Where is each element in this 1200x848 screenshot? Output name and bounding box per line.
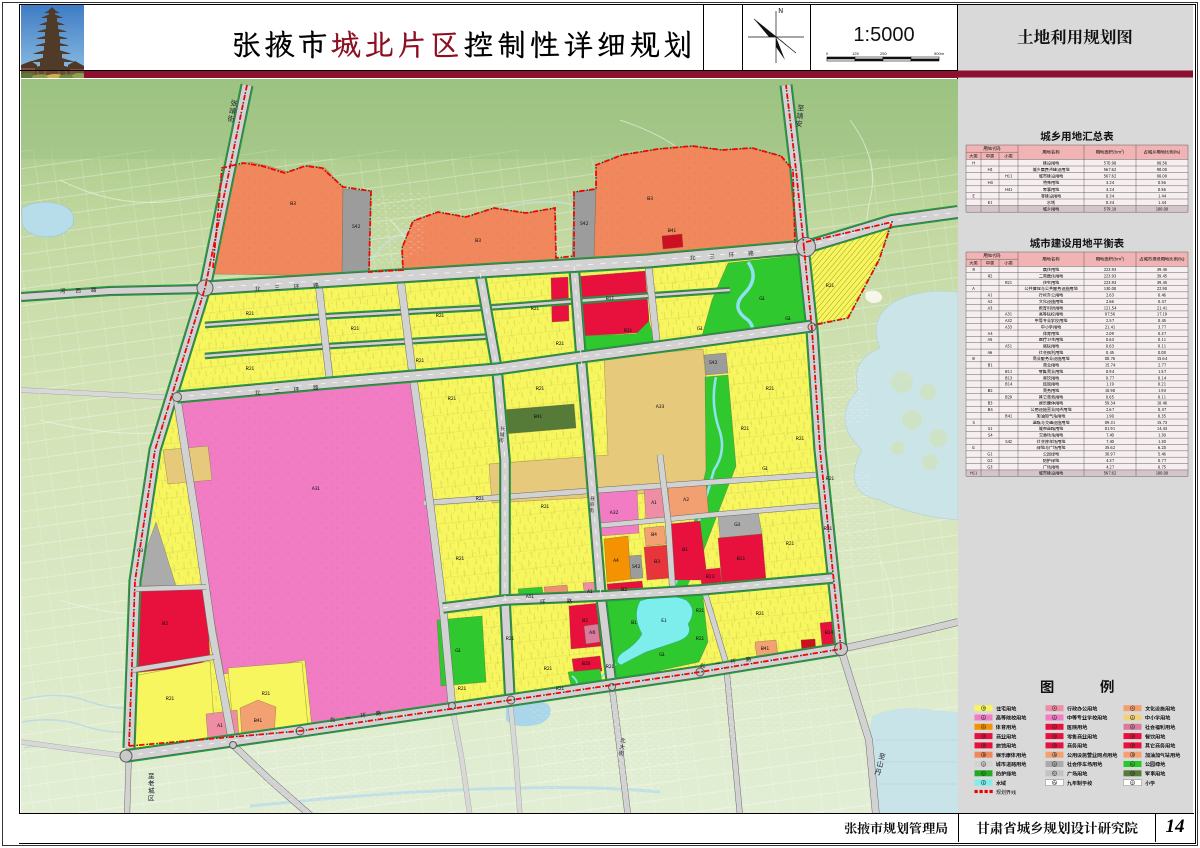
svg-text:15.64: 15.64 bbox=[1157, 356, 1168, 362]
svg-text:R21: R21 bbox=[544, 665, 553, 672]
svg-text:R21: R21 bbox=[536, 385, 545, 392]
svg-text:小学: 小学 bbox=[1145, 780, 1155, 787]
svg-text:G1: G1 bbox=[659, 651, 665, 658]
svg-text:1.44: 1.44 bbox=[1158, 200, 1167, 206]
svg-text:8.94: 8.94 bbox=[1106, 369, 1115, 375]
svg-text:河西路: 河西路 bbox=[60, 285, 107, 295]
svg-text:21.41: 21.41 bbox=[1105, 324, 1116, 330]
svg-text:社会停车场用地: 社会停车场用地 bbox=[1037, 439, 1066, 445]
svg-text:九: 九 bbox=[1052, 780, 1057, 785]
svg-text:医疗卫生用地: 医疗卫生用地 bbox=[1039, 337, 1064, 343]
svg-text:B3: B3 bbox=[654, 558, 660, 565]
svg-text:2.67: 2.67 bbox=[1106, 407, 1115, 413]
svg-text:广场用地: 广场用地 bbox=[1042, 464, 1059, 470]
svg-text:公用设施营业网点用地: 公用设施营业网点用地 bbox=[1031, 406, 1072, 413]
svg-text:A1: A1 bbox=[988, 293, 993, 299]
svg-text:B41: B41 bbox=[534, 413, 543, 420]
svg-text:R21: R21 bbox=[826, 475, 835, 482]
svg-text:B13: B13 bbox=[706, 573, 715, 580]
svg-text:高等院校用地: 高等院校用地 bbox=[1039, 312, 1064, 318]
svg-text:B14: B14 bbox=[1005, 382, 1013, 388]
svg-text:公园绿地: 公园绿地 bbox=[1145, 761, 1166, 768]
svg-text:5.46: 5.46 bbox=[1158, 452, 1167, 458]
svg-text:零售商业用地: 零售商业用地 bbox=[1067, 733, 1098, 740]
svg-text:图: 图 bbox=[1040, 676, 1055, 697]
svg-text:100.00: 100.00 bbox=[1156, 471, 1169, 477]
svg-text:R21: R21 bbox=[262, 690, 271, 697]
svg-text:R21: R21 bbox=[756, 610, 765, 617]
svg-text:教育科研用地: 教育科研用地 bbox=[1039, 305, 1064, 311]
svg-text:0.75: 0.75 bbox=[1158, 464, 1167, 470]
svg-text:R21: R21 bbox=[786, 540, 795, 547]
svg-text:R21: R21 bbox=[796, 435, 805, 442]
svg-text:R21: R21 bbox=[458, 685, 467, 692]
svg-text:社会停车场用地: 社会停车场用地 bbox=[1067, 761, 1103, 768]
svg-text:G3: G3 bbox=[734, 521, 740, 528]
svg-text:占城市建设用地比例(%): 占城市建设用地比例(%) bbox=[1139, 257, 1185, 263]
svg-text:223.93: 223.93 bbox=[1104, 267, 1117, 273]
svg-text:小类: 小类 bbox=[1004, 153, 1013, 159]
svg-text:B41: B41 bbox=[668, 227, 677, 234]
svg-text:B3: B3 bbox=[475, 237, 481, 244]
svg-text:1.44: 1.44 bbox=[1158, 193, 1167, 199]
svg-text:2.63: 2.63 bbox=[1106, 293, 1115, 299]
svg-text:广场用地: 广场用地 bbox=[1067, 771, 1088, 778]
svg-text:B41: B41 bbox=[761, 645, 770, 652]
svg-text:G: G bbox=[972, 445, 975, 451]
svg-text:2.57: 2.57 bbox=[1106, 318, 1115, 324]
svg-text:A33: A33 bbox=[1005, 324, 1013, 330]
svg-text:6.28: 6.28 bbox=[1158, 445, 1167, 451]
svg-text:0.65: 0.65 bbox=[1106, 394, 1115, 400]
svg-text:1.98: 1.98 bbox=[1106, 413, 1115, 419]
svg-text:G1: G1 bbox=[762, 465, 768, 472]
svg-text:0.47: 0.47 bbox=[1158, 299, 1167, 305]
svg-text:G1: G1 bbox=[759, 295, 765, 302]
svg-text:S42: S42 bbox=[580, 220, 589, 227]
svg-text:中等专业学校用地: 中等专业学校用地 bbox=[1067, 715, 1108, 722]
svg-text:G1: G1 bbox=[987, 452, 993, 458]
svg-text:A1: A1 bbox=[217, 722, 223, 729]
svg-text:其它商务用地: 其它商务用地 bbox=[1039, 394, 1064, 400]
svg-text:7.40: 7.40 bbox=[1106, 439, 1115, 445]
svg-text:S42: S42 bbox=[352, 223, 361, 230]
svg-text:A32: A32 bbox=[610, 509, 619, 516]
svg-text:R21: R21 bbox=[696, 607, 705, 614]
svg-text:B: B bbox=[982, 752, 984, 757]
svg-text:A31: A31 bbox=[312, 485, 321, 492]
svg-text:餐饮用地: 餐饮用地 bbox=[1145, 733, 1166, 740]
svg-text:特殊用地: 特殊用地 bbox=[1043, 180, 1059, 186]
svg-text:占城乡用地比例(%): 占城乡用地比例(%) bbox=[1144, 150, 1181, 156]
svg-text:非建设用地: 非建设用地 bbox=[1041, 193, 1061, 199]
svg-text:B: B bbox=[1131, 743, 1133, 748]
svg-text:至老城区: 至老城区 bbox=[148, 770, 155, 803]
svg-text:81.91: 81.91 bbox=[1105, 426, 1116, 432]
svg-text:A2: A2 bbox=[988, 299, 993, 305]
svg-text:H: H bbox=[972, 160, 975, 166]
svg-text:其它商务用地: 其它商务用地 bbox=[1145, 743, 1176, 750]
svg-text:2.66: 2.66 bbox=[1106, 299, 1115, 305]
svg-text:住宅用地: 住宅用地 bbox=[1042, 280, 1059, 286]
svg-text:R21: R21 bbox=[351, 325, 360, 332]
svg-text:商业服务业设施用地: 商业服务业设施用地 bbox=[1033, 356, 1070, 362]
svg-text:17.19: 17.19 bbox=[1157, 312, 1168, 318]
svg-text:零售商业用地: 零售商业用地 bbox=[1039, 369, 1064, 375]
svg-text:A4: A4 bbox=[988, 331, 993, 337]
svg-text:社会福利用地: 社会福利用地 bbox=[1039, 350, 1064, 356]
svg-text:B29: B29 bbox=[1005, 394, 1013, 400]
svg-text:H41: H41 bbox=[1005, 187, 1013, 193]
svg-text:0.45: 0.45 bbox=[1106, 350, 1115, 356]
svg-text:行政办公用地: 行政办公用地 bbox=[1067, 705, 1098, 712]
svg-text:B: B bbox=[1131, 752, 1133, 757]
svg-text:中等专业学校用地: 中等专业学校用地 bbox=[1035, 318, 1068, 324]
svg-text:R21: R21 bbox=[826, 282, 835, 289]
svg-text:R21: R21 bbox=[1005, 280, 1013, 286]
svg-text:R21: R21 bbox=[606, 663, 615, 670]
svg-text:B4: B4 bbox=[651, 531, 657, 538]
svg-text:S: S bbox=[982, 761, 984, 766]
svg-text:用地名称: 用地名称 bbox=[1041, 256, 1060, 263]
svg-text:39.45: 39.45 bbox=[1157, 274, 1168, 280]
svg-text:大类: 大类 bbox=[969, 260, 978, 266]
svg-text:公用设施营业网点用地: 公用设施营业网点用地 bbox=[1067, 752, 1118, 759]
svg-text:R21: R21 bbox=[824, 525, 833, 532]
svg-text:军事用地: 军事用地 bbox=[1043, 187, 1059, 193]
svg-text:防护绿地: 防护绿地 bbox=[996, 771, 1017, 778]
svg-text:H: H bbox=[1131, 771, 1133, 776]
svg-text:0.63: 0.63 bbox=[1106, 343, 1115, 349]
svg-text:A5: A5 bbox=[988, 337, 993, 343]
svg-text:B3: B3 bbox=[290, 200, 296, 207]
svg-text:R21: R21 bbox=[541, 503, 550, 510]
svg-text:交通场站用地: 交通场站用地 bbox=[1039, 433, 1064, 439]
svg-text:中小学用地: 中小学用地 bbox=[1145, 715, 1171, 722]
svg-text:G3: G3 bbox=[137, 547, 143, 554]
svg-text:H11: H11 bbox=[1005, 174, 1013, 180]
svg-text:0.63: 0.63 bbox=[1106, 337, 1115, 343]
svg-text:城乡用地: 城乡用地 bbox=[1042, 207, 1059, 213]
svg-text:行政办公用地: 行政办公用地 bbox=[1038, 293, 1064, 299]
svg-text:餐饮用地: 餐饮用地 bbox=[1043, 375, 1059, 381]
svg-text:0.45: 0.45 bbox=[1158, 318, 1167, 324]
svg-text:R21: R21 bbox=[166, 695, 175, 702]
svg-text:0.14: 0.14 bbox=[1158, 375, 1167, 381]
svg-text:R21: R21 bbox=[624, 327, 633, 334]
svg-text:A51: A51 bbox=[526, 593, 535, 600]
svg-text:城市建设用地平衡表: 城市建设用地平衡表 bbox=[1029, 236, 1125, 251]
svg-text:3.24: 3.24 bbox=[1106, 187, 1115, 193]
svg-text:R21: R21 bbox=[476, 495, 485, 502]
svg-text:R21: R21 bbox=[556, 340, 565, 347]
svg-text:125: 125 bbox=[852, 51, 859, 56]
svg-text:R21: R21 bbox=[448, 395, 457, 402]
svg-text:H4: H4 bbox=[987, 180, 993, 186]
svg-text:R21: R21 bbox=[556, 685, 565, 692]
svg-text:加油加气站用地: 加油加气站用地 bbox=[1036, 413, 1066, 419]
svg-text:0.46: 0.46 bbox=[1158, 293, 1167, 299]
svg-text:B29: B29 bbox=[582, 660, 591, 667]
svg-text:土地利用规划图: 土地利用规划图 bbox=[1017, 24, 1133, 48]
svg-text:B: B bbox=[982, 733, 984, 738]
svg-text:B1: B1 bbox=[682, 546, 688, 553]
svg-text:A6: A6 bbox=[988, 350, 993, 356]
svg-text:B: B bbox=[1131, 733, 1133, 738]
svg-text:规划界线: 规划界线 bbox=[996, 789, 1016, 796]
svg-text:B: B bbox=[1053, 752, 1055, 757]
svg-text:体育用地: 体育用地 bbox=[995, 724, 1017, 731]
svg-text:绿地与广场用地: 绿地与广场用地 bbox=[1037, 445, 1066, 451]
svg-text:500m: 500m bbox=[934, 51, 945, 56]
svg-text:A51: A51 bbox=[1005, 343, 1013, 349]
svg-text:道路与交通设施用地: 道路与交通设施用地 bbox=[1032, 420, 1070, 426]
svg-text:用地代码: 用地代码 bbox=[982, 252, 1001, 259]
svg-text:旅馆用地: 旅馆用地 bbox=[1042, 382, 1059, 388]
svg-text:城市道路用地: 城市道路用地 bbox=[1038, 426, 1064, 432]
svg-text:0.56: 0.56 bbox=[1158, 187, 1167, 193]
svg-text:B: B bbox=[972, 356, 975, 362]
svg-text:N: N bbox=[778, 6, 783, 16]
svg-text:水域: 水域 bbox=[1046, 200, 1055, 206]
svg-text:B: B bbox=[1053, 743, 1055, 748]
svg-text:商业用地: 商业用地 bbox=[1043, 363, 1059, 369]
svg-text:小类: 小类 bbox=[1004, 260, 1013, 266]
svg-text:B: B bbox=[982, 743, 984, 748]
svg-text:0.11: 0.11 bbox=[1158, 394, 1167, 400]
svg-text:3.24: 3.24 bbox=[1106, 180, 1115, 186]
svg-text:中类: 中类 bbox=[986, 260, 995, 266]
svg-text:防护绿地: 防护绿地 bbox=[1043, 458, 1059, 464]
svg-text:E: E bbox=[983, 780, 985, 785]
svg-text:用地面积(hm²): 用地面积(hm²) bbox=[1095, 257, 1124, 263]
svg-text:社会福利用地: 社会福利用地 bbox=[1145, 724, 1176, 731]
svg-text:0: 0 bbox=[826, 51, 829, 56]
svg-text:加油加气站用地: 加油加气站用地 bbox=[1145, 752, 1181, 759]
svg-text:567.62: 567.62 bbox=[1104, 167, 1117, 173]
svg-text:121.54: 121.54 bbox=[1104, 305, 1117, 311]
svg-text:100.00: 100.00 bbox=[1156, 207, 1169, 213]
svg-text:250: 250 bbox=[880, 51, 887, 56]
svg-text:0.56: 0.56 bbox=[1158, 180, 1167, 186]
svg-text:567.62: 567.62 bbox=[1104, 174, 1117, 180]
svg-text:S4: S4 bbox=[988, 433, 993, 439]
svg-text:10.46: 10.46 bbox=[1157, 401, 1168, 407]
svg-text:G1: G1 bbox=[455, 647, 461, 654]
svg-text:体育用地: 体育用地 bbox=[1042, 331, 1059, 337]
svg-text:30.97: 30.97 bbox=[1105, 452, 1116, 458]
svg-text:2.77: 2.77 bbox=[1158, 363, 1167, 369]
svg-text:G1: G1 bbox=[785, 315, 791, 322]
svg-text:城乡用地汇总表: 城乡用地汇总表 bbox=[1039, 129, 1114, 144]
svg-text:2.09: 2.09 bbox=[1106, 331, 1115, 337]
svg-text:旅馆用地: 旅馆用地 bbox=[996, 743, 1017, 750]
svg-text:B1: B1 bbox=[988, 363, 994, 369]
svg-text:R: R bbox=[972, 267, 975, 273]
svg-text:居住用地: 居住用地 bbox=[1042, 267, 1059, 273]
svg-text:二类居住用地: 二类居住用地 bbox=[1039, 274, 1064, 280]
svg-text:环 路: 环 路 bbox=[540, 597, 582, 606]
svg-text:S42: S42 bbox=[1005, 439, 1013, 445]
svg-text:0.08: 0.08 bbox=[1158, 350, 1167, 356]
svg-text:高等院校用地: 高等院校用地 bbox=[996, 715, 1027, 722]
svg-text:商业用地: 商业用地 bbox=[996, 733, 1017, 740]
svg-text:1:5000: 1:5000 bbox=[853, 24, 914, 46]
svg-text:文化设施用地: 文化设施用地 bbox=[1039, 299, 1064, 305]
svg-text:1.30: 1.30 bbox=[1158, 439, 1167, 445]
svg-text:0.11: 0.11 bbox=[1158, 343, 1167, 349]
svg-text:R21: R21 bbox=[741, 425, 750, 432]
svg-text:14.43: 14.43 bbox=[1157, 426, 1168, 432]
svg-text:39.45: 39.45 bbox=[1157, 267, 1168, 273]
svg-text:R21: R21 bbox=[506, 635, 515, 642]
svg-text:97.56: 97.56 bbox=[1105, 312, 1116, 318]
svg-text:S1: S1 bbox=[988, 426, 993, 432]
svg-text:A1: A1 bbox=[587, 588, 593, 595]
svg-text:R2: R2 bbox=[988, 274, 994, 280]
svg-text:8.34: 8.34 bbox=[1106, 200, 1115, 206]
svg-text:R21: R21 bbox=[456, 555, 465, 562]
svg-text:10.98: 10.98 bbox=[1105, 388, 1116, 394]
svg-text:15.73: 15.73 bbox=[1157, 420, 1168, 426]
svg-text:公园绿地: 公园绿地 bbox=[1043, 452, 1059, 458]
svg-text:4.37: 4.37 bbox=[1106, 458, 1115, 464]
svg-text:0.37: 0.37 bbox=[1158, 331, 1167, 337]
svg-text:22.90: 22.90 bbox=[1157, 286, 1168, 292]
svg-text:21.41: 21.41 bbox=[1157, 305, 1168, 311]
svg-text:用地面积(hm²): 用地面积(hm²) bbox=[1095, 150, 1124, 156]
svg-text:城市建设用地: 城市建设用地 bbox=[1038, 174, 1064, 180]
svg-text:1.19: 1.19 bbox=[1106, 382, 1115, 388]
svg-text:H1: H1 bbox=[987, 167, 993, 173]
svg-text:223.93: 223.93 bbox=[1104, 280, 1117, 286]
svg-text:医院用地: 医院用地 bbox=[1043, 343, 1059, 349]
svg-text:B1: B1 bbox=[631, 619, 637, 626]
svg-text:89.31: 89.31 bbox=[1105, 420, 1116, 426]
svg-text:B13: B13 bbox=[1005, 375, 1013, 381]
svg-text:G2: G2 bbox=[987, 458, 993, 464]
svg-text:98.00: 98.00 bbox=[1157, 174, 1168, 180]
svg-text:R21: R21 bbox=[766, 385, 775, 392]
svg-text:0.77: 0.77 bbox=[1158, 458, 1167, 464]
svg-text:A4: A4 bbox=[613, 557, 619, 564]
svg-text:0.77: 0.77 bbox=[1106, 375, 1115, 381]
svg-text:35.62: 35.62 bbox=[1105, 445, 1116, 451]
svg-text:98.56: 98.56 bbox=[1157, 160, 1168, 166]
svg-text:住宅用地: 住宅用地 bbox=[996, 705, 1017, 712]
svg-text:7.40: 7.40 bbox=[1106, 433, 1115, 439]
svg-text:文化设施用地: 文化设施用地 bbox=[1145, 705, 1176, 712]
svg-text:S: S bbox=[1053, 761, 1055, 766]
svg-text:B3: B3 bbox=[647, 195, 653, 202]
svg-text:A2: A2 bbox=[683, 496, 689, 503]
svg-text:水域: 水域 bbox=[995, 780, 1006, 787]
svg-text:A1: A1 bbox=[651, 499, 657, 506]
svg-text:S42: S42 bbox=[709, 359, 718, 366]
svg-text:B11: B11 bbox=[606, 295, 615, 302]
svg-text:B41: B41 bbox=[1005, 413, 1013, 419]
svg-text:用地代码: 用地代码 bbox=[982, 145, 1001, 152]
svg-text:城市道路用地: 城市道路用地 bbox=[995, 761, 1027, 768]
svg-text:3.77: 3.77 bbox=[1158, 324, 1167, 330]
svg-text:B41: B41 bbox=[254, 717, 263, 724]
svg-text:军事用地: 军事用地 bbox=[1145, 771, 1166, 778]
svg-text:R21: R21 bbox=[531, 305, 540, 312]
svg-text:R21: R21 bbox=[436, 312, 445, 319]
svg-text:4.27: 4.27 bbox=[1106, 464, 1115, 470]
svg-text:S42: S42 bbox=[632, 563, 641, 570]
svg-text:建设用地: 建设用地 bbox=[1042, 160, 1059, 166]
svg-text:88.76: 88.76 bbox=[1105, 356, 1116, 362]
svg-text:39.45: 39.45 bbox=[1157, 280, 1168, 286]
svg-text:E1: E1 bbox=[988, 200, 993, 206]
svg-text:570.98: 570.98 bbox=[1104, 160, 1117, 166]
svg-text:娱乐康体用地: 娱乐康体用地 bbox=[996, 752, 1027, 759]
svg-text:G3: G3 bbox=[987, 464, 993, 470]
svg-text:8.34: 8.34 bbox=[1106, 193, 1115, 199]
svg-text:小: 小 bbox=[1130, 780, 1135, 785]
svg-text:B2: B2 bbox=[988, 388, 994, 394]
svg-text:九年制学校: 九年制学校 bbox=[1066, 780, 1093, 787]
svg-text:B11: B11 bbox=[737, 555, 746, 562]
svg-text:A3: A3 bbox=[988, 305, 993, 311]
svg-text:0.11: 0.11 bbox=[1158, 337, 1167, 343]
svg-text:0.47: 0.47 bbox=[1158, 407, 1167, 413]
svg-text:B3: B3 bbox=[988, 401, 994, 407]
svg-text:R21: R21 bbox=[246, 310, 255, 317]
svg-text:1.93: 1.93 bbox=[1158, 388, 1167, 394]
svg-text:0.21: 0.21 bbox=[1158, 382, 1167, 388]
svg-text:130.00: 130.00 bbox=[1104, 286, 1117, 292]
svg-text:B4: B4 bbox=[988, 407, 994, 413]
svg-text:59.34: 59.34 bbox=[1105, 401, 1116, 407]
svg-text:B11: B11 bbox=[1005, 369, 1013, 375]
svg-text:1.57: 1.57 bbox=[1158, 369, 1167, 375]
svg-text:例: 例 bbox=[1100, 676, 1115, 697]
svg-text:医院用地: 医院用地 bbox=[1067, 724, 1088, 731]
svg-text:R21: R21 bbox=[416, 357, 425, 364]
svg-text:中小学用地: 中小学用地 bbox=[1041, 324, 1061, 330]
svg-text:A33: A33 bbox=[656, 403, 665, 410]
svg-text:G1: G1 bbox=[697, 325, 703, 332]
svg-text:中类: 中类 bbox=[986, 153, 995, 159]
svg-text:商务用地: 商务用地 bbox=[1043, 388, 1059, 394]
svg-text:B2: B2 bbox=[582, 617, 588, 624]
svg-text:R21: R21 bbox=[696, 635, 705, 642]
svg-text:567.62: 567.62 bbox=[1104, 471, 1117, 477]
svg-text:0.35: 0.35 bbox=[1158, 413, 1167, 419]
svg-text:B: B bbox=[1053, 733, 1055, 738]
svg-text:B2: B2 bbox=[621, 586, 627, 593]
svg-text:大类: 大类 bbox=[969, 153, 978, 159]
svg-text:E1: E1 bbox=[661, 617, 667, 624]
svg-text:城市建设用地: 城市建设用地 bbox=[1038, 471, 1064, 477]
svg-text:H11: H11 bbox=[970, 471, 978, 477]
svg-text:R21: R21 bbox=[246, 365, 255, 372]
svg-text:娱乐康体用地: 娱乐康体用地 bbox=[1039, 401, 1064, 407]
svg-text:B2: B2 bbox=[162, 620, 168, 627]
svg-text:商务用地: 商务用地 bbox=[1067, 743, 1088, 750]
svg-text:1.30: 1.30 bbox=[1158, 433, 1167, 439]
svg-text:98.00: 98.00 bbox=[1157, 167, 1168, 173]
svg-text:城乡居民点建设用地: 城乡居民点建设用地 bbox=[1032, 167, 1070, 173]
svg-text:B14: B14 bbox=[825, 629, 834, 636]
svg-text:用地名称: 用地名称 bbox=[1041, 149, 1060, 156]
svg-text:A6: A6 bbox=[589, 629, 595, 636]
svg-text:223.93: 223.93 bbox=[1104, 274, 1117, 280]
svg-text:15.74: 15.74 bbox=[1105, 363, 1116, 369]
svg-text:A32: A32 bbox=[1005, 318, 1013, 324]
